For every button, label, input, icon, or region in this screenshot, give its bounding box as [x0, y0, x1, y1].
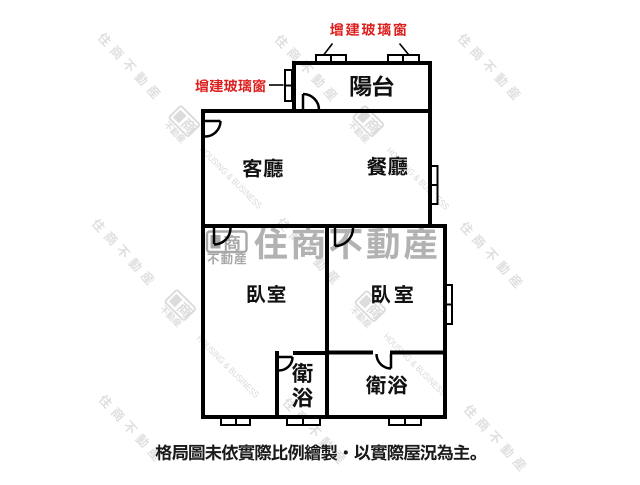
svg-text:HOUSING & BUSINESS: HOUSING & BUSINESS: [198, 144, 264, 210]
svg-text:HOUSING & BUSINESS: HOUSING & BUSINESS: [385, 145, 451, 211]
